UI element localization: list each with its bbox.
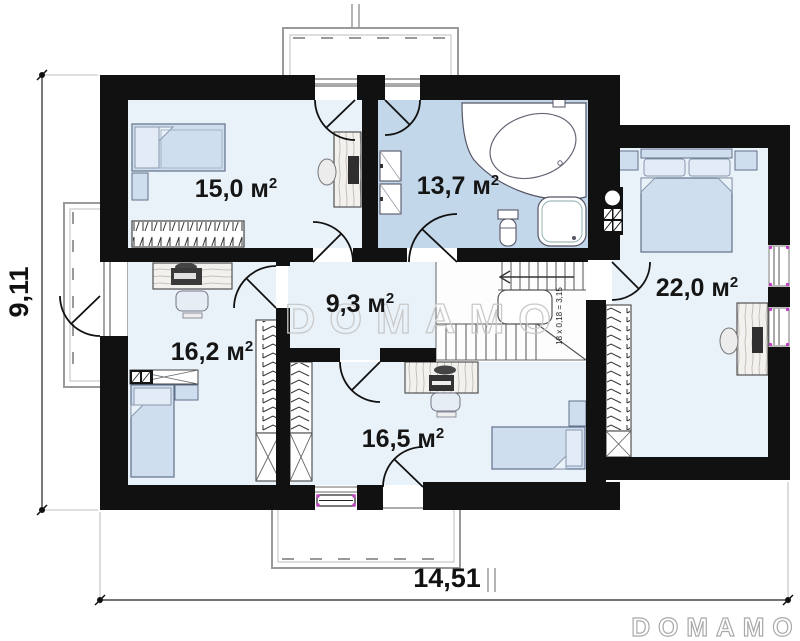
bottom-window-radiator [315, 485, 357, 510]
toilet [498, 210, 518, 246]
room-right-label: 22,0 м2 [656, 274, 738, 302]
hall-label: 9,3 м2 [326, 290, 395, 318]
floor-plan-page: DOMAMO 15,0 м2 13,7 м2 22,0 м2 9,3 м2 16… [0, 0, 800, 641]
floor-plan-drawing: DOMAMO 15,0 м2 13,7 м2 22,0 м2 9,3 м2 16… [0, 0, 800, 641]
dimension-height [37, 70, 98, 515]
wardrobe [606, 305, 631, 457]
bathroom-label: 13,7 м2 [417, 172, 499, 200]
brand-logo: DOMAMO [631, 612, 800, 641]
wardrobe [132, 221, 244, 247]
nightstand [132, 173, 148, 200]
wardrobe-column [290, 362, 312, 481]
door-left-balcony [60, 296, 100, 336]
nightstand [175, 385, 198, 400]
monitor-icon [348, 156, 359, 184]
stair-formula-label: 18 x 0,18 = 3,15 [555, 287, 564, 345]
nightstand [569, 401, 586, 426]
shelf-unit [130, 370, 198, 384]
office-chair [431, 393, 460, 411]
height-dimension-label: 9,11 [4, 266, 34, 317]
chimney-flue [602, 187, 623, 235]
monitor-icon [752, 327, 763, 353]
office-chair [318, 159, 336, 185]
office-chair [720, 328, 738, 354]
room-top-left-label: 15,0 м2 [195, 175, 277, 203]
room-mid-left-label: 16,2 м2 [171, 338, 253, 366]
office-chair [176, 291, 208, 311]
shower [538, 197, 586, 246]
right-wall-window-2 [769, 308, 789, 346]
width-dimension-label: 14,51 [413, 563, 481, 593]
left-balcony-window [104, 262, 110, 336]
nightstand [735, 151, 757, 170]
right-wall-window-1 [769, 246, 789, 286]
room-bottom-label: 16,5 м2 [362, 425, 444, 453]
top-dormer-outline [283, 4, 458, 84]
